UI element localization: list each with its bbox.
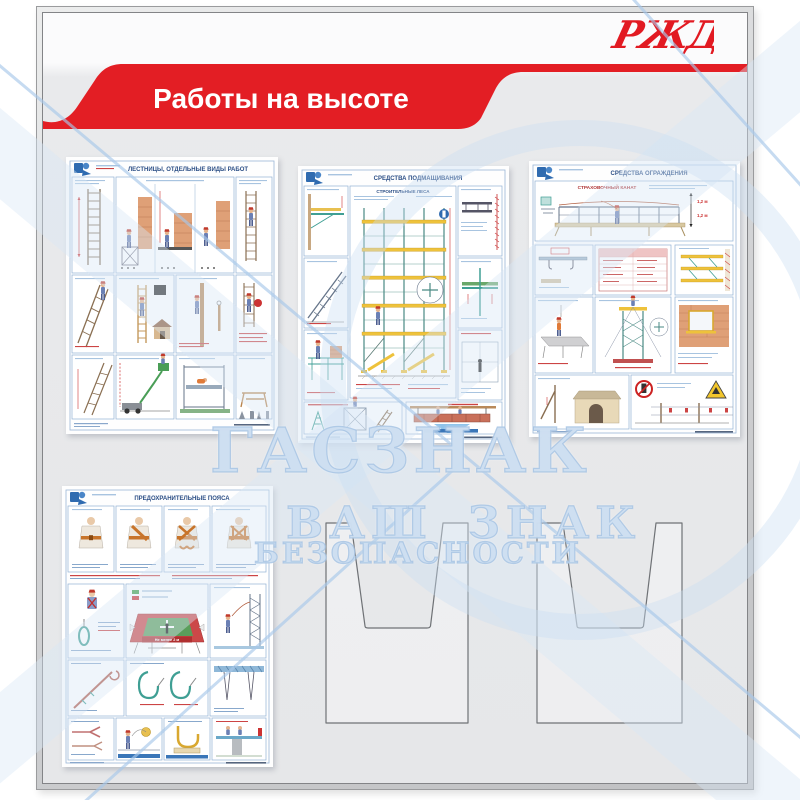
product-photo-safety-stand: Работы на высоте ЛЕСТНИЦЫ, ОТДЕЛЬНЫЕ ВИД… [0,0,800,800]
pocket-2 [537,523,682,723]
pocket-1 [326,523,468,723]
board-surface: Работы на высоте ЛЕСТНИЦЫ, ОТДЕЛЬНЫЕ ВИД… [42,12,748,784]
document-pockets [43,13,747,783]
rzd-logo: РЖД [604,8,714,58]
board-frame: Работы на высоте ЛЕСТНИЦЫ, ОТДЕЛЬНЫЕ ВИД… [36,6,754,790]
rzd-logo-text: РЖД [607,14,714,58]
